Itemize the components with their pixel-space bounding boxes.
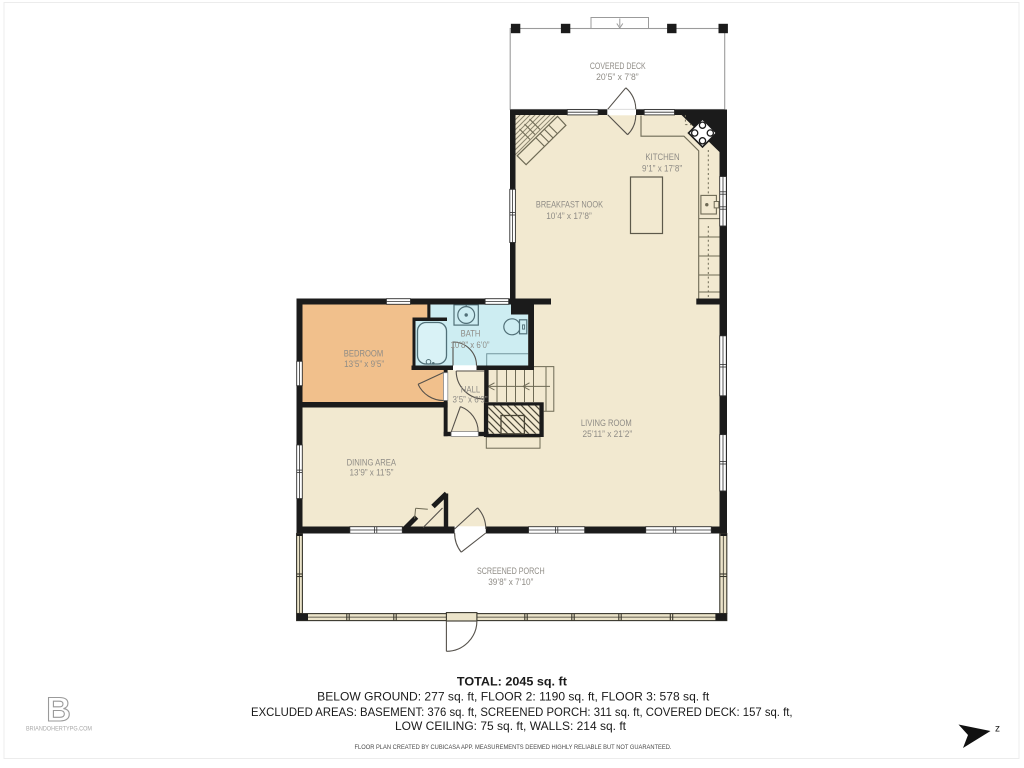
svg-text:KITCHEN: KITCHEN	[645, 152, 679, 162]
svg-text:SCREENED PORCH: SCREENED PORCH	[477, 566, 545, 576]
svg-text:3’5” x 6’9”: 3’5” x 6’9”	[453, 395, 488, 405]
svg-text:10’4” x 17’8”: 10’4” x 17’8”	[546, 211, 592, 221]
svg-text:13’5” x 9’5”: 13’5” x 9’5”	[344, 359, 384, 369]
svg-text:13’9” x 11’5”: 13’9” x 11’5”	[350, 468, 394, 478]
svg-text:BRIANDOHERTYPG.COM: BRIANDOHERTYPG.COM	[26, 726, 92, 733]
svg-text:COVERED DECK: COVERED DECK	[590, 61, 646, 71]
svg-text:z: z	[995, 724, 1000, 735]
svg-text:TOTAL: 2045 sq. ft: TOTAL: 2045 sq. ft	[457, 674, 567, 688]
svg-text:EXCLUDED AREAS: BASEMENT: 376: EXCLUDED AREAS: BASEMENT: 376 sq. ft, SC…	[251, 705, 793, 719]
svg-text:LIVING ROOM: LIVING ROOM	[581, 418, 632, 428]
svg-text:10’8” x 6’0”: 10’8” x 6’0”	[451, 340, 490, 350]
svg-text:9’1” x 17’8”: 9’1” x 17’8”	[642, 163, 682, 173]
svg-text:BEDROOM: BEDROOM	[344, 348, 383, 358]
svg-text:20’5” x 7’8”: 20’5” x 7’8”	[596, 72, 639, 82]
svg-text:25’11” x 21’2”: 25’11” x 21’2”	[583, 429, 633, 439]
svg-text:BATH: BATH	[461, 329, 481, 339]
svg-text:FLOOR PLAN CREATED BY CUBICASA: FLOOR PLAN CREATED BY CUBICASA APP. MEAS…	[355, 744, 672, 751]
svg-text:39’8” x 7’10”: 39’8” x 7’10”	[488, 577, 533, 587]
svg-text:BREAKFAST NOOK: BREAKFAST NOOK	[536, 199, 603, 209]
svg-text:B: B	[46, 691, 71, 729]
svg-text:HALL: HALL	[461, 384, 481, 394]
svg-text:DINING AREA: DINING AREA	[347, 457, 397, 467]
svg-text:LOW CEILING: 75 sq. ft, WALLS:: LOW CEILING: 75 sq. ft, WALLS: 214 sq. f…	[395, 719, 627, 733]
svg-text:BELOW GROUND: 277 sq. ft, FLOO: BELOW GROUND: 277 sq. ft, FLOOR 2: 1190 …	[317, 689, 710, 703]
